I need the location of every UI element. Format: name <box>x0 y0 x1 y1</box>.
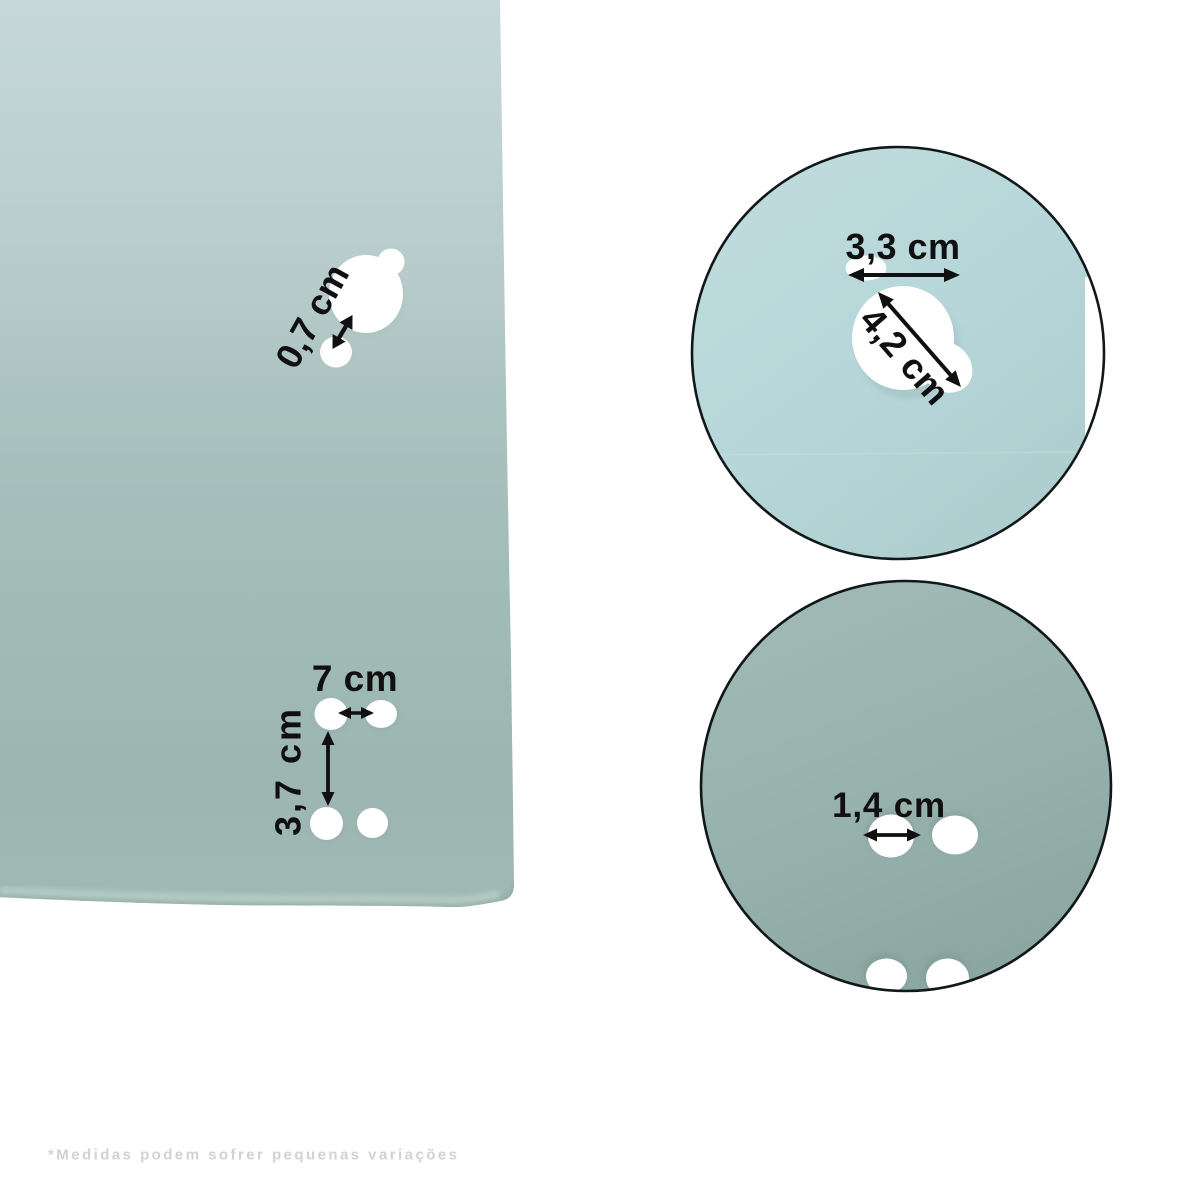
svg-text:7 cm: 7 cm <box>312 658 398 699</box>
svg-text:1,4 cm: 1,4 cm <box>832 786 946 825</box>
svg-text:3,7 cm: 3,7 cm <box>268 706 309 836</box>
svg-text:*Medidas podem sofrer pequenas: *Medidas podem sofrer pequenas variações <box>48 1147 459 1164</box>
svg-text:3,3 cm: 3,3 cm <box>845 226 960 267</box>
